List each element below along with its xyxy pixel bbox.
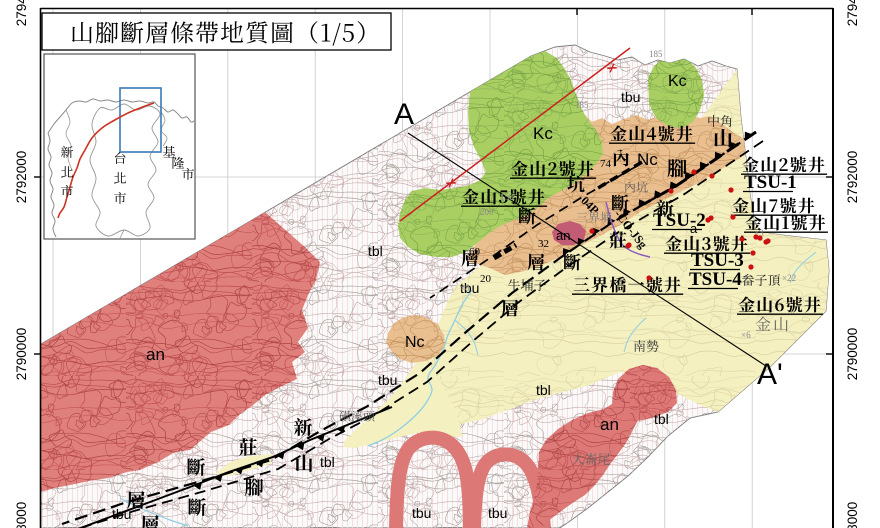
svg-text:185: 185 xyxy=(575,100,589,110)
svg-text:20: 20 xyxy=(480,273,492,285)
svg-text:2794000: 2794000 xyxy=(14,0,29,26)
svg-text:a: a xyxy=(690,221,698,236)
svg-text:tbu: tbu xyxy=(378,372,397,388)
svg-text:an: an xyxy=(556,228,570,243)
svg-text:2790000: 2790000 xyxy=(14,328,29,381)
svg-text:2792000: 2792000 xyxy=(14,151,29,204)
svg-text:an: an xyxy=(600,415,619,434)
svg-text:Kc: Kc xyxy=(668,73,687,90)
svg-text:2794000: 2794000 xyxy=(845,0,860,26)
svg-text:tbl: tbl xyxy=(536,382,551,398)
svg-text:2788000: 2788000 xyxy=(845,502,860,528)
svg-text:an: an xyxy=(146,345,165,364)
svg-text:2788000: 2788000 xyxy=(14,502,29,528)
svg-text:tbl: tbl xyxy=(368,243,383,259)
svg-text:Nc: Nc xyxy=(405,334,425,351)
svg-text:TSU-1: TSU-1 xyxy=(744,172,797,193)
svg-text:TSU-3: TSU-3 xyxy=(691,250,744,271)
svg-text:×8: ×8 xyxy=(460,283,470,293)
svg-text:tbu: tbu xyxy=(412,505,431,521)
svg-text:tbl: tbl xyxy=(320,454,335,470)
svg-text:×6: ×6 xyxy=(741,330,751,340)
svg-text:TSU-4: TSU-4 xyxy=(689,269,742,290)
svg-text:2792000: 2792000 xyxy=(845,151,860,204)
svg-text:A: A xyxy=(394,98,414,131)
svg-text:Nc: Nc xyxy=(637,150,658,169)
svg-text:150: 150 xyxy=(500,192,514,202)
svg-text:tbu: tbu xyxy=(488,505,507,521)
svg-text:32: 32 xyxy=(538,238,549,250)
svg-text:tbl: tbl xyxy=(654,411,669,427)
svg-text:A': A' xyxy=(757,358,783,391)
svg-text:2790000: 2790000 xyxy=(845,328,860,381)
svg-text:200: 200 xyxy=(480,207,494,217)
svg-text:185: 185 xyxy=(649,49,663,59)
svg-text:×22: ×22 xyxy=(782,273,796,283)
svg-text:Kc: Kc xyxy=(533,124,553,143)
svg-text:tbu: tbu xyxy=(621,89,640,105)
svg-text:tbu: tbu xyxy=(112,506,131,522)
svg-text:74: 74 xyxy=(600,158,612,170)
svg-text:60: 60 xyxy=(469,246,481,258)
